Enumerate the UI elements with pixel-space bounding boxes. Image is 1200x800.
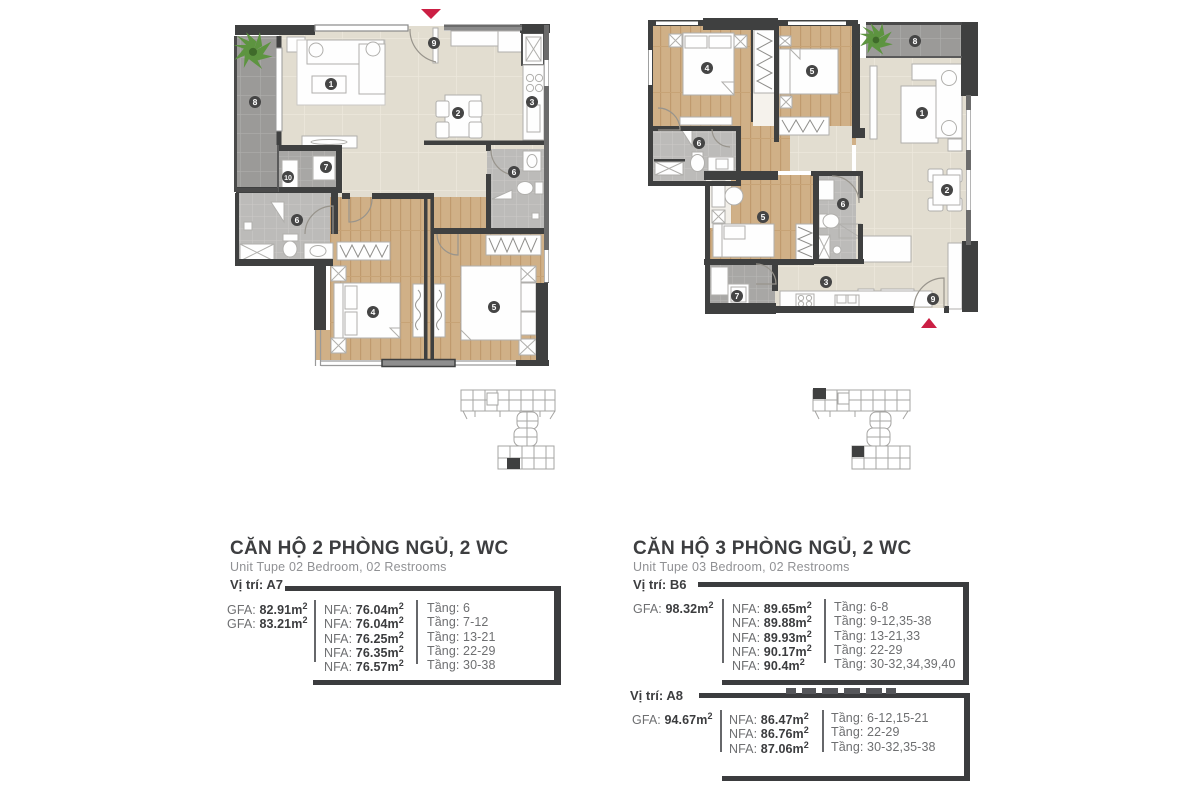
svg-text:4: 4 [705,63,710,73]
svg-text:6: 6 [841,199,846,209]
svg-text:4: 4 [371,307,376,317]
svg-text:5: 5 [810,66,815,76]
svg-text:10: 10 [284,175,292,182]
svg-text:5: 5 [761,212,766,222]
svg-text:6: 6 [697,138,702,148]
svg-text:1: 1 [920,108,925,118]
svg-text:6: 6 [295,215,300,225]
svg-text:8: 8 [253,97,258,107]
svg-text:9: 9 [432,38,437,48]
svg-text:3: 3 [530,97,535,107]
svg-text:3: 3 [824,277,829,287]
svg-text:7: 7 [735,291,740,301]
svg-text:1: 1 [329,79,334,89]
svg-text:8: 8 [913,36,918,46]
svg-text:6: 6 [512,167,517,177]
svg-text:9: 9 [931,294,936,304]
svg-text:5: 5 [492,302,497,312]
svg-text:7: 7 [324,162,329,172]
svg-text:2: 2 [456,108,461,118]
svg-text:2: 2 [945,185,950,195]
